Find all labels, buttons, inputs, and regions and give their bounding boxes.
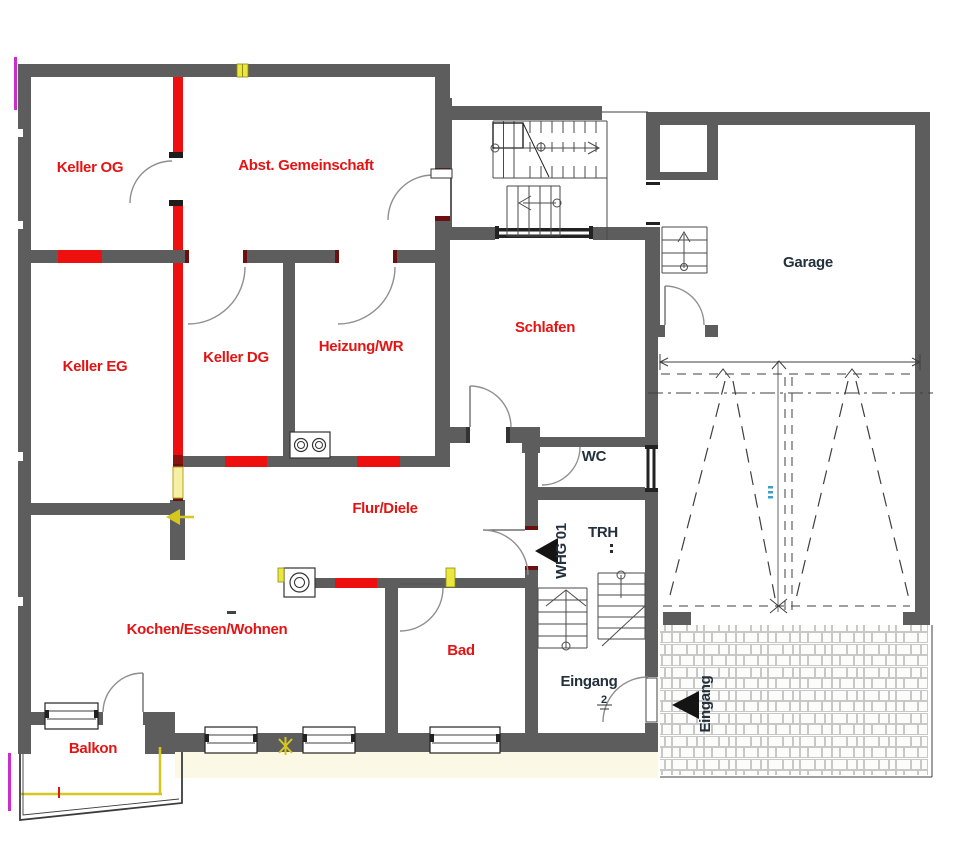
- label-flur-diele: Flur/Diele: [352, 500, 417, 517]
- label-keller-dg: Keller DG: [203, 349, 269, 366]
- bad-window: [430, 727, 500, 753]
- living-window-1: [205, 727, 257, 753]
- main-staircase: [491, 121, 607, 240]
- garage-entry-steps: [662, 227, 707, 273]
- keller-og-door-arc: [130, 161, 172, 203]
- wc-door-arc: [542, 447, 580, 485]
- magenta-line-top: [14, 57, 17, 110]
- washing-machine-icon: [284, 568, 315, 597]
- label-kochen-essen-wohnen: Kochen/Essen/Wohnen: [127, 621, 288, 638]
- bad-door-arc: [400, 588, 443, 631]
- appliances: [284, 432, 330, 597]
- yellow-door-leaf: [173, 467, 183, 498]
- label-abst-gemeinschaft: Abst. Gemeinschaft: [238, 157, 374, 174]
- label-bad: Bad: [447, 642, 475, 659]
- label-step-count: 2: [601, 694, 607, 706]
- heizung-door-arc: [338, 267, 395, 324]
- windows: [45, 182, 660, 753]
- label-eingang: Eingang: [560, 673, 617, 690]
- label-keller-eg: Keller EG: [63, 358, 128, 375]
- walkway-band: [175, 752, 658, 778]
- label-trh: TRH: [588, 524, 618, 541]
- abstellraum-door-panel: [431, 169, 452, 178]
- label-wc: WC: [582, 448, 607, 465]
- living-window-2: [303, 727, 355, 753]
- apartment-door-arc: [483, 530, 528, 575]
- label-whg01: WHG 01: [553, 523, 570, 579]
- label-heizung-wr: Heizung/WR: [319, 338, 404, 355]
- floorplan-page: Keller OG Abst. Gemeinschaft Keller EG K…: [0, 0, 960, 849]
- eingang-door-panel: [646, 678, 657, 722]
- label-keller-og: Keller OG: [57, 159, 124, 176]
- blue-dashes: [768, 486, 773, 499]
- door-jamb-ticks: [169, 152, 510, 443]
- balkon-window: [45, 703, 98, 729]
- schlafen-door-arc: [470, 386, 511, 427]
- washer-yellow-mark: [278, 568, 284, 582]
- label-schlafen: Schlafen: [515, 319, 575, 336]
- balkon-door-arc: [103, 673, 143, 712]
- kochen-dash-mark: [227, 611, 236, 614]
- floorplan-canvas: Keller OG Abst. Gemeinschaft Keller EG K…: [0, 0, 960, 849]
- trh-staircase: [538, 571, 645, 650]
- garage-side-door-arc: [665, 286, 704, 325]
- abstellraum-door-arc: [388, 175, 433, 220]
- stove-icon: [290, 432, 330, 458]
- keller-dg-door-arc: [188, 267, 245, 324]
- garage-door-symbols: [648, 354, 933, 613]
- label-balkon: Balkon: [69, 740, 117, 757]
- balkon-railing: [20, 752, 182, 820]
- magenta-line-bottom: [8, 753, 11, 811]
- label-garage: Garage: [783, 254, 833, 271]
- label-eingang-outdoor: Eingang: [697, 675, 714, 732]
- flur-yellow-mark: [446, 568, 455, 587]
